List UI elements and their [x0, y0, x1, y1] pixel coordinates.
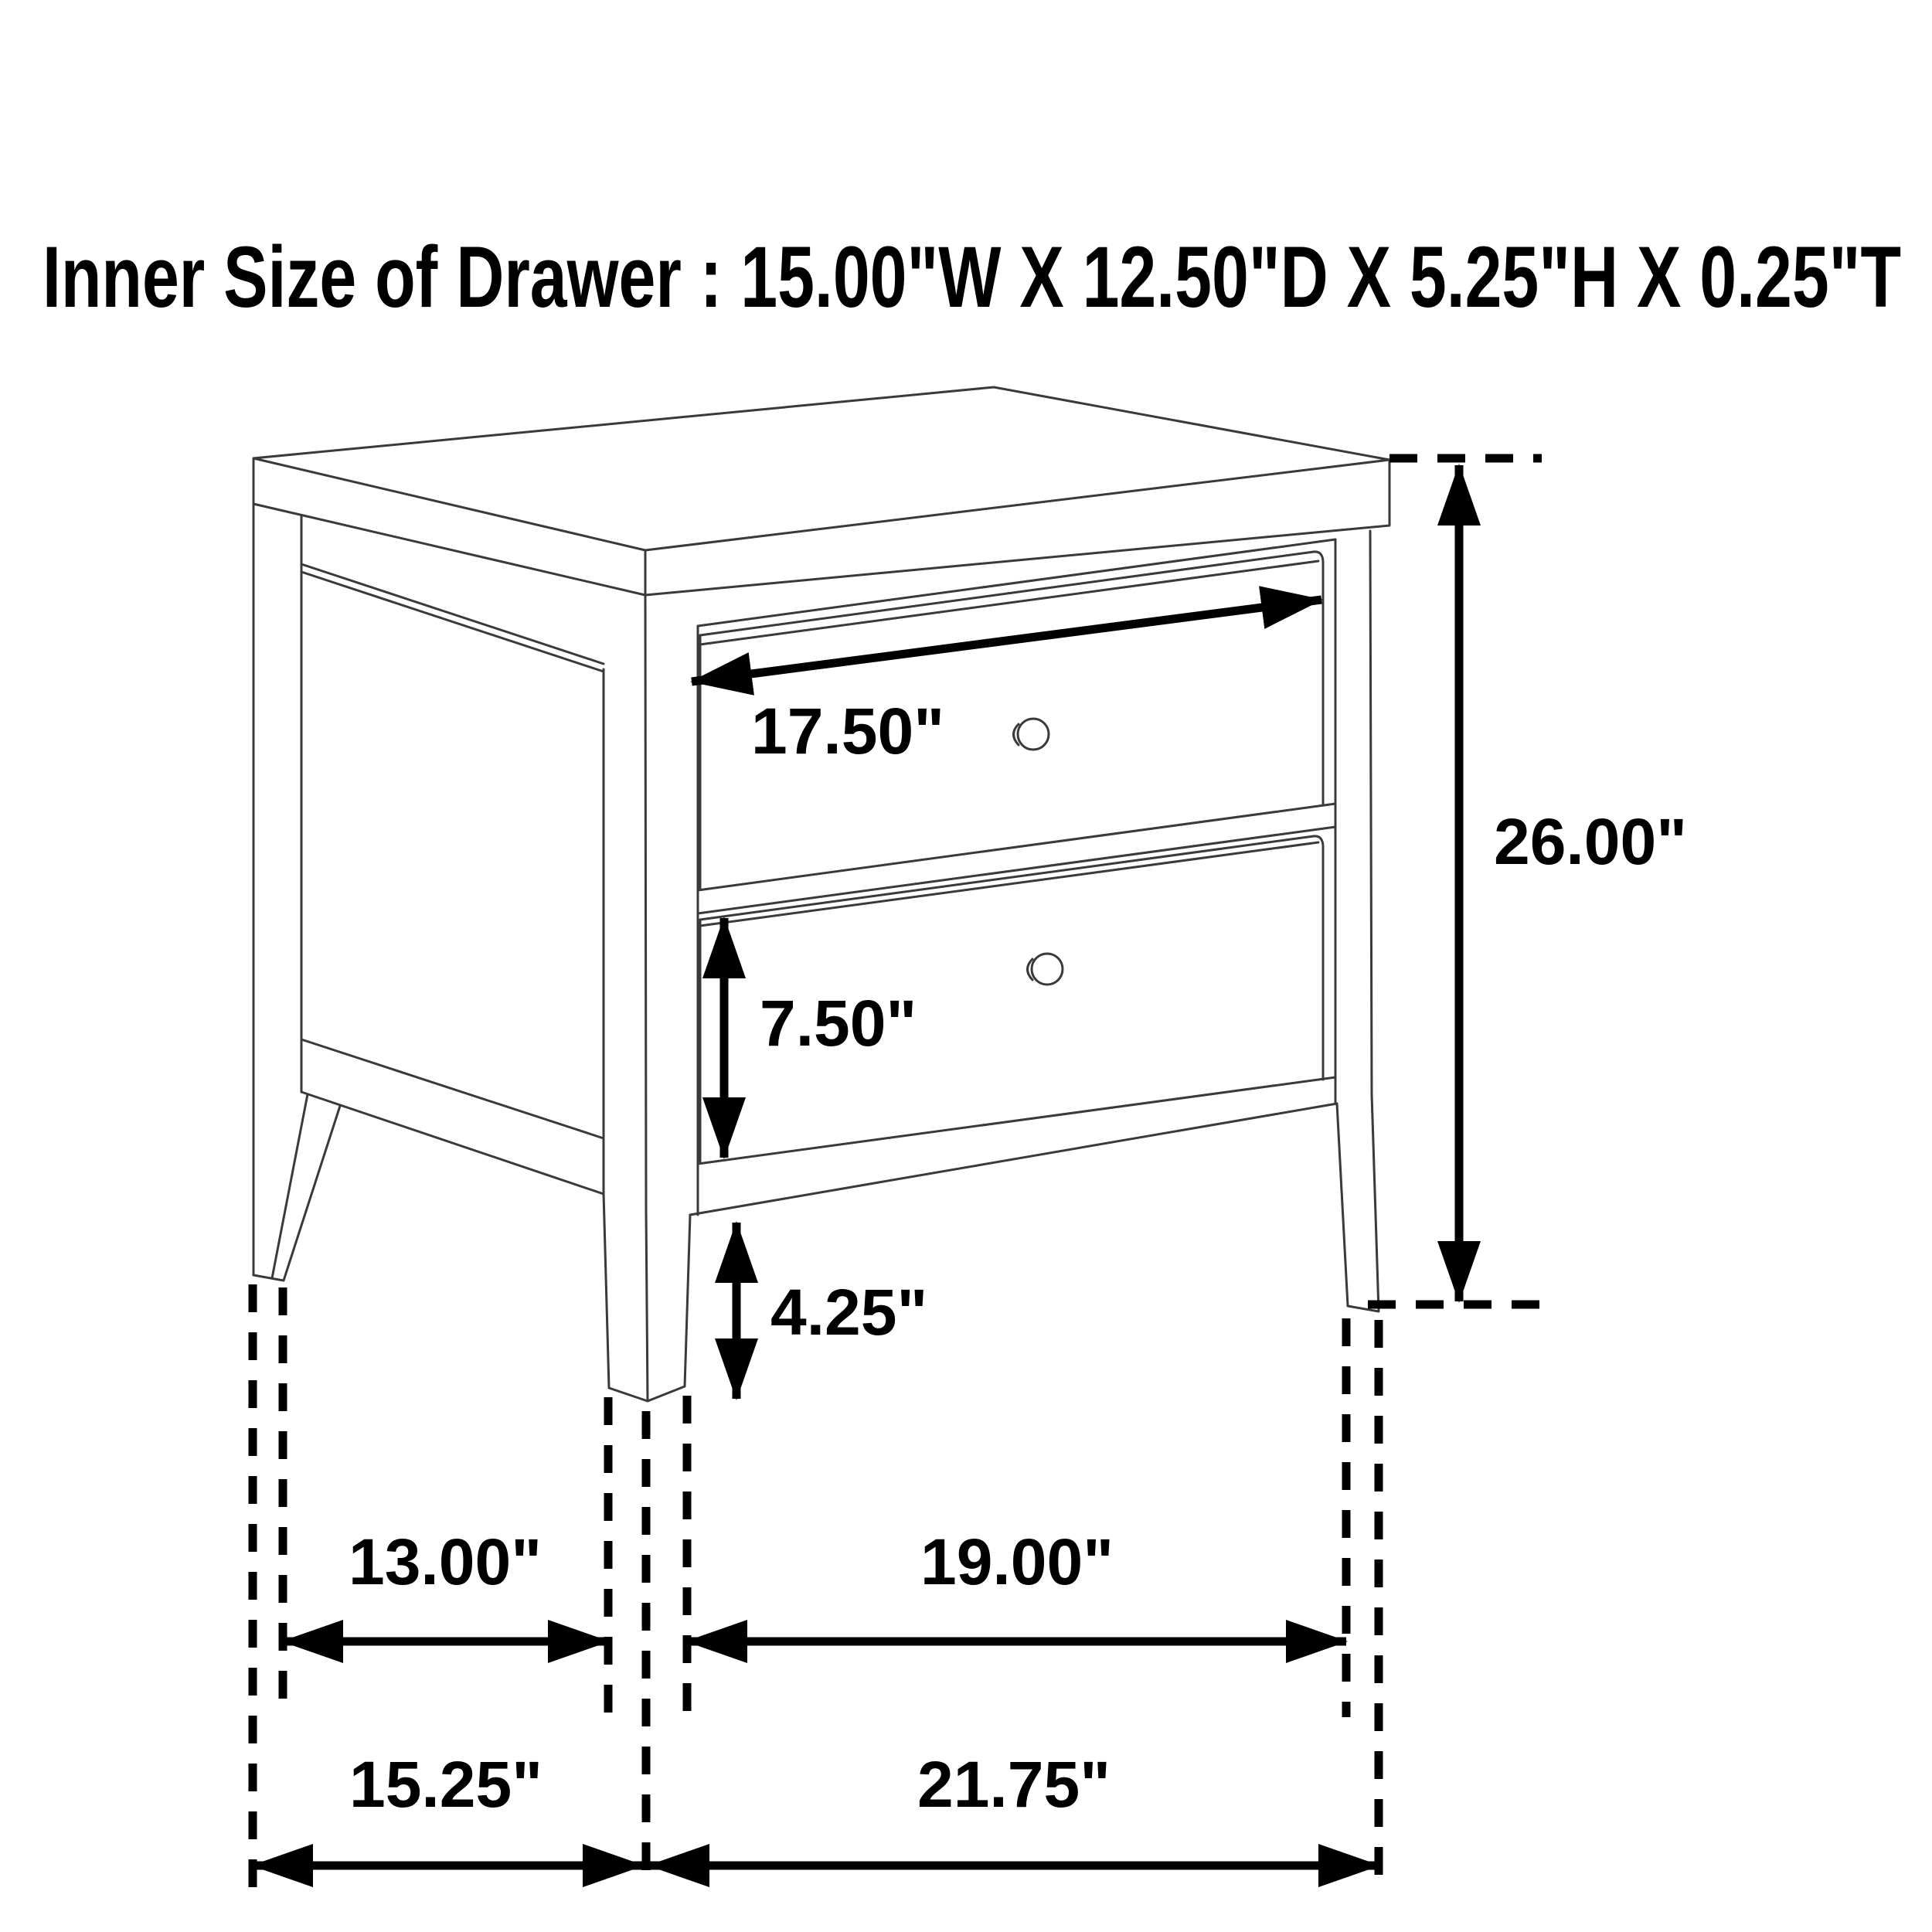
- dim-label-front-outer: 21.75": [917, 1748, 1111, 1821]
- extension-lines: [253, 458, 1542, 1890]
- left-side-panel: [253, 504, 646, 1275]
- dim-label-leg-height: 4.25": [770, 1276, 927, 1349]
- dimension-diagram-page: Inner Size of Drawer : 15.00"W X 12.50"D…: [0, 0, 1932, 1932]
- upper-drawer-knob: [1018, 719, 1049, 750]
- page-title: Inner Size of Drawer : 15.00"W X 12.50"D…: [43, 229, 1901, 325]
- lower-drawer-knob: [1032, 954, 1063, 985]
- dimension-annotations: 17.50" 7.50" 4.25" 26.00" 13.00" 19.00" …: [253, 458, 1687, 1890]
- legs: [253, 1094, 1379, 1401]
- front-left-leg: [604, 1193, 690, 1401]
- dim-label-drawer-height: 7.50": [760, 987, 917, 1060]
- back-left-leg: [253, 1094, 340, 1281]
- dim-label-side-outer: 15.25": [349, 1748, 543, 1821]
- dim-label-side-inner: 13.00": [349, 1526, 542, 1598]
- dim-label-front-inner: 19.00": [920, 1526, 1114, 1598]
- nightstand-drawing: [253, 387, 1389, 1401]
- dim-label-drawer-width: 17.50": [751, 695, 944, 767]
- front-right-leg: [1337, 1094, 1379, 1311]
- dim-arrow-drawer-width: [692, 600, 1321, 682]
- nightstand-dimension-diagram: Inner Size of Drawer : 15.00"W X 12.50"D…: [0, 0, 1932, 1932]
- dim-label-overall-height: 26.00": [1494, 805, 1687, 878]
